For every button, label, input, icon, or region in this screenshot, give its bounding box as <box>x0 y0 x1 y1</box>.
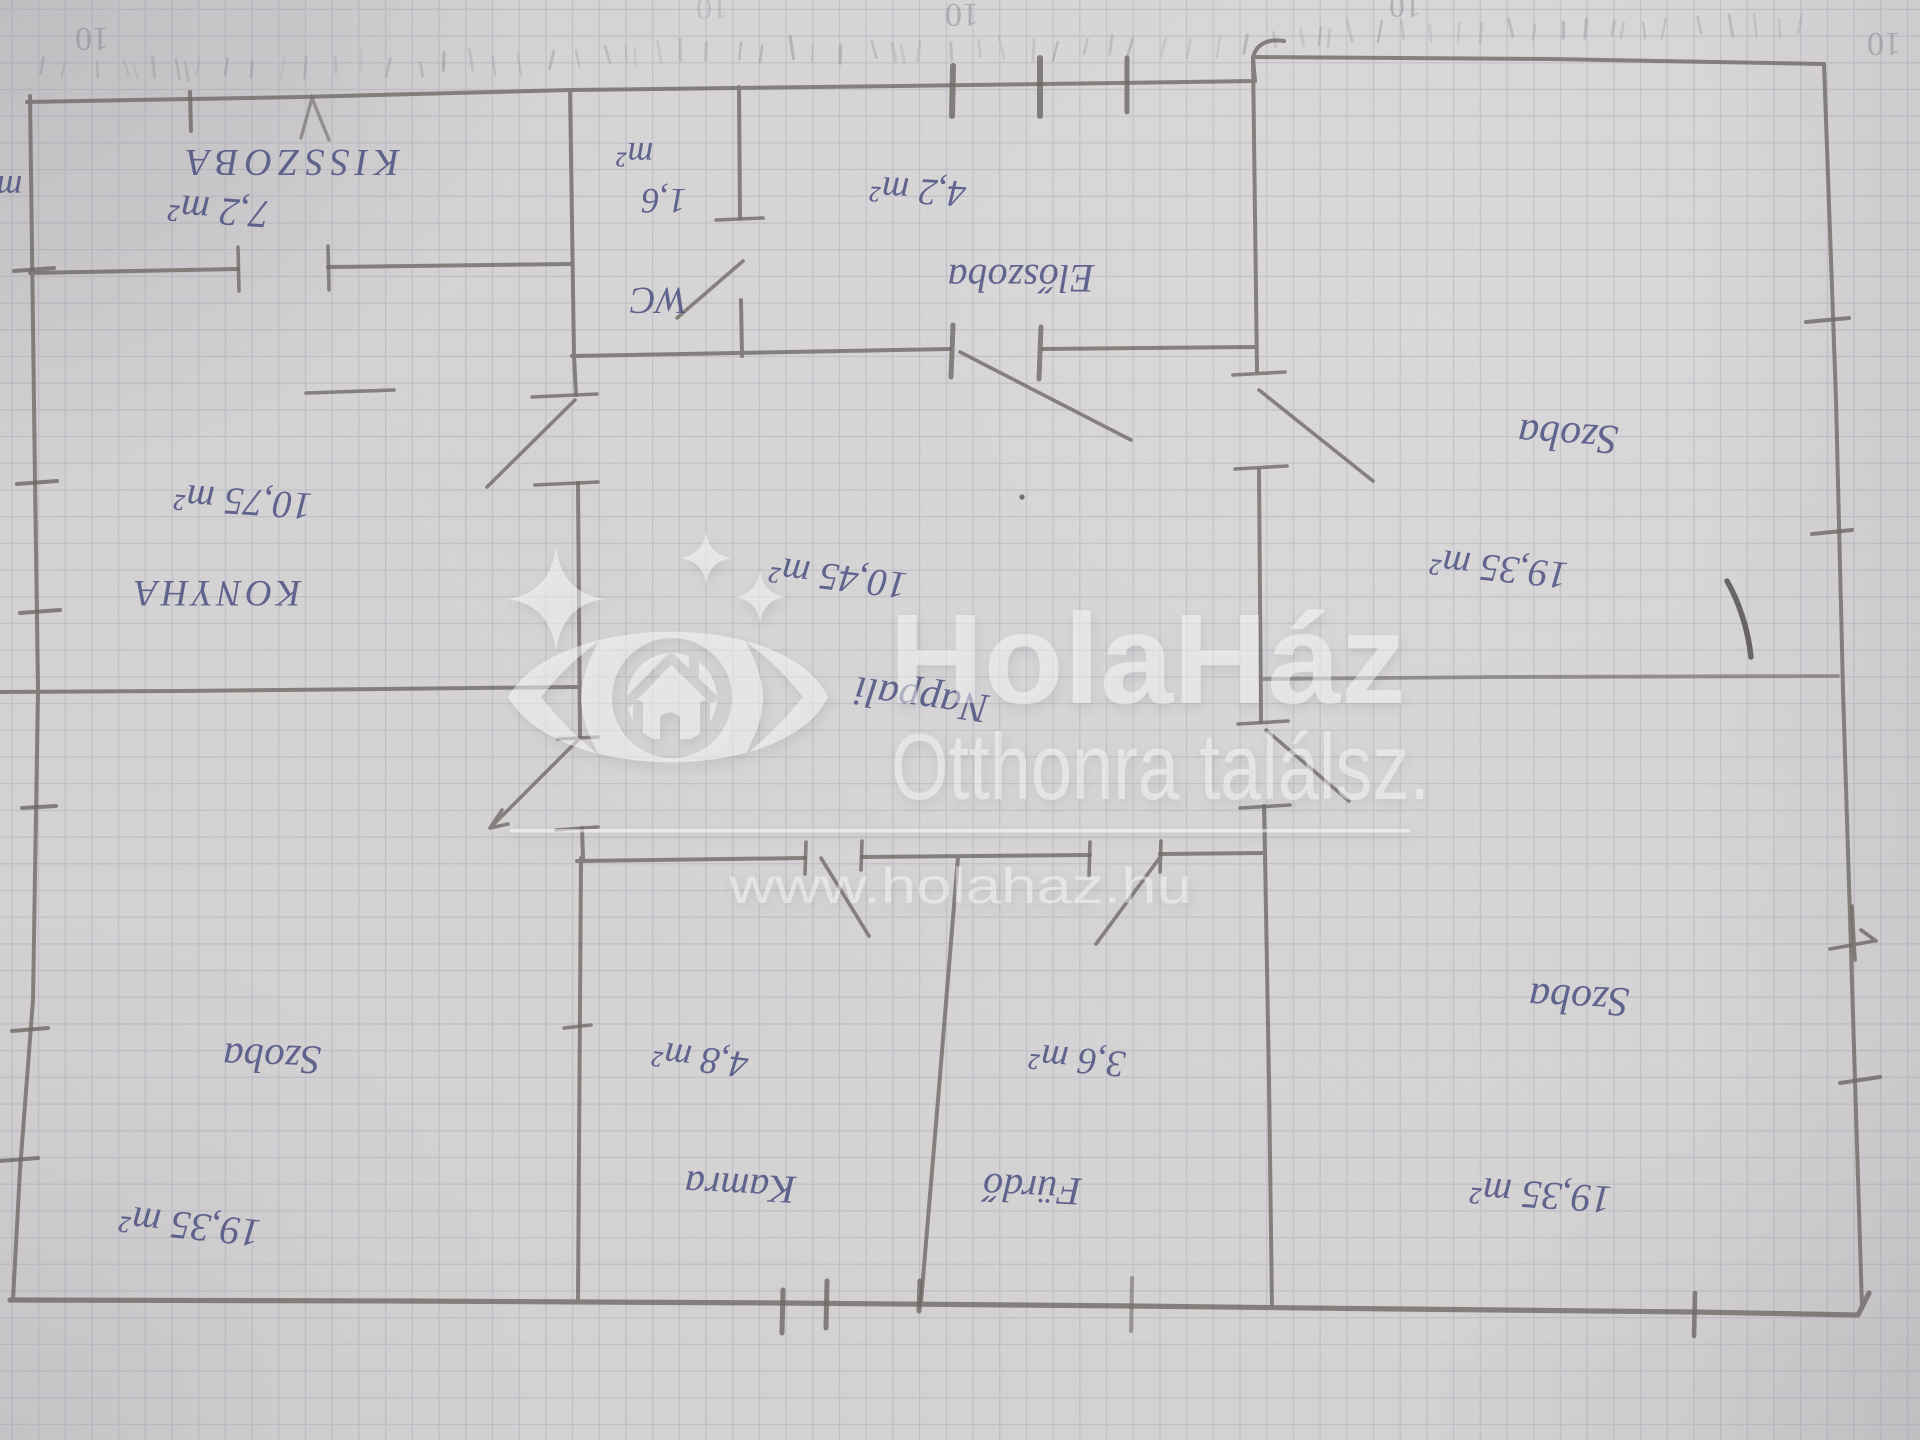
svg-text:KISSZOBA: KISSZOBA <box>181 141 401 183</box>
svg-text:1,6: 1,6 <box>642 181 687 221</box>
svg-text:Szoba: Szoba <box>1516 410 1619 463</box>
svg-text:3,6 m²: 3,6 m² <box>1027 1035 1128 1085</box>
svg-text:Szoba: Szoba <box>222 1034 322 1083</box>
svg-text:Előszoba: Előszoba <box>948 256 1096 301</box>
svg-text:KONYHA: KONYHA <box>131 572 302 613</box>
svg-text:Fürdő: Fürdő <box>980 1164 1084 1214</box>
svg-text:m²: m² <box>0 168 22 208</box>
svg-text:www.holahaz.hu: www.holahaz.hu <box>728 858 1192 914</box>
svg-text:Szoba: Szoba <box>1528 973 1631 1024</box>
svg-text:m²: m² <box>615 135 653 175</box>
svg-text:4,2 m²: 4,2 m² <box>869 167 968 214</box>
svg-text:10: 10 <box>696 0 728 27</box>
svg-text:HolaHáz: HolaHáz <box>889 588 1406 731</box>
svg-text:WC: WC <box>630 279 688 321</box>
svg-text:7,2 m²: 7,2 m² <box>166 185 271 237</box>
svg-text:Kamra: Kamra <box>683 1162 797 1213</box>
svg-text:10: 10 <box>1867 25 1901 62</box>
svg-text:10: 10 <box>945 0 979 33</box>
svg-text:Otthonra találsz.: Otthonra találsz. <box>891 714 1430 819</box>
svg-text:10: 10 <box>75 20 109 57</box>
svg-text:10: 10 <box>1389 0 1421 25</box>
